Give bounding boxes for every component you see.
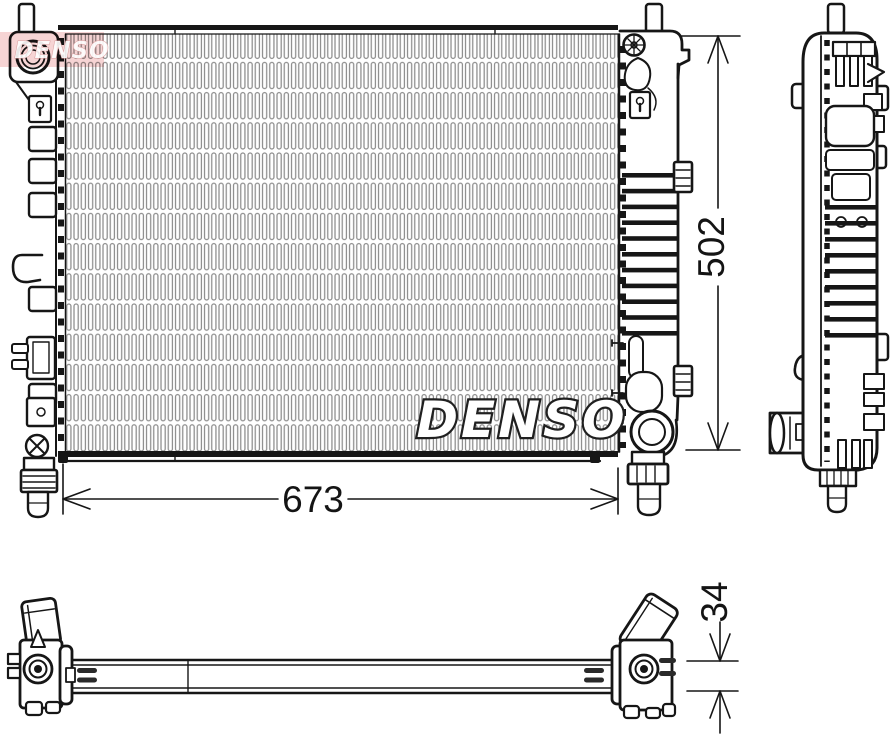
keyhole-bracket-right <box>630 92 650 118</box>
side-connector-upper <box>674 162 692 192</box>
side-bottom-pin <box>820 470 856 512</box>
plan-left-fitting <box>8 598 75 715</box>
center-watermark-text: DENSO <box>416 391 627 449</box>
corner-watermark-text: DENSO <box>14 38 109 64</box>
drawing-canvas: DENSO DENSO 673 502 <box>0 0 896 739</box>
dimension-depth: 34 <box>687 581 738 733</box>
radiator-technical-drawing: DENSO DENSO 673 502 <box>0 0 896 739</box>
tank-oval-detail <box>625 58 651 90</box>
left-outlet-pipe <box>21 458 57 517</box>
hook-bracket <box>13 255 42 282</box>
dim-height-label: 502 <box>691 216 732 278</box>
plan-left-boss <box>24 655 52 683</box>
plan-right-boss <box>630 655 658 683</box>
side-connector-lower <box>674 366 692 396</box>
right-mount-pin <box>646 4 662 33</box>
keyhole-bracket-left <box>29 96 51 122</box>
left-mount-pin <box>19 4 34 33</box>
front-view: DENSO DENSO <box>0 4 692 517</box>
vent-cap <box>624 35 645 56</box>
side-top-pin <box>828 4 844 33</box>
tank-blob-detail <box>626 372 662 412</box>
ladder-ribs-right <box>622 173 678 336</box>
plan-view <box>8 592 680 718</box>
mount-plate-left <box>27 398 55 426</box>
plan-right-fitting <box>612 592 680 718</box>
bottom-header-bar <box>58 451 618 463</box>
left-tank <box>10 4 58 517</box>
outlet-port <box>631 411 673 453</box>
corner-watermark: DENSO <box>0 32 110 67</box>
side-bottom-comb <box>838 440 872 468</box>
side-ladder-ribs <box>825 205 877 338</box>
dim-width-label: 673 <box>282 479 344 520</box>
dim-depth-label: 34 <box>694 581 735 622</box>
drain-fitting <box>26 435 48 457</box>
connector-block-left <box>12 337 55 379</box>
dimension-width: 673 <box>63 464 618 520</box>
top-header-bar <box>58 25 618 34</box>
radiator-core <box>66 34 618 452</box>
plan-core-bar <box>67 660 617 693</box>
side-view <box>770 4 888 512</box>
